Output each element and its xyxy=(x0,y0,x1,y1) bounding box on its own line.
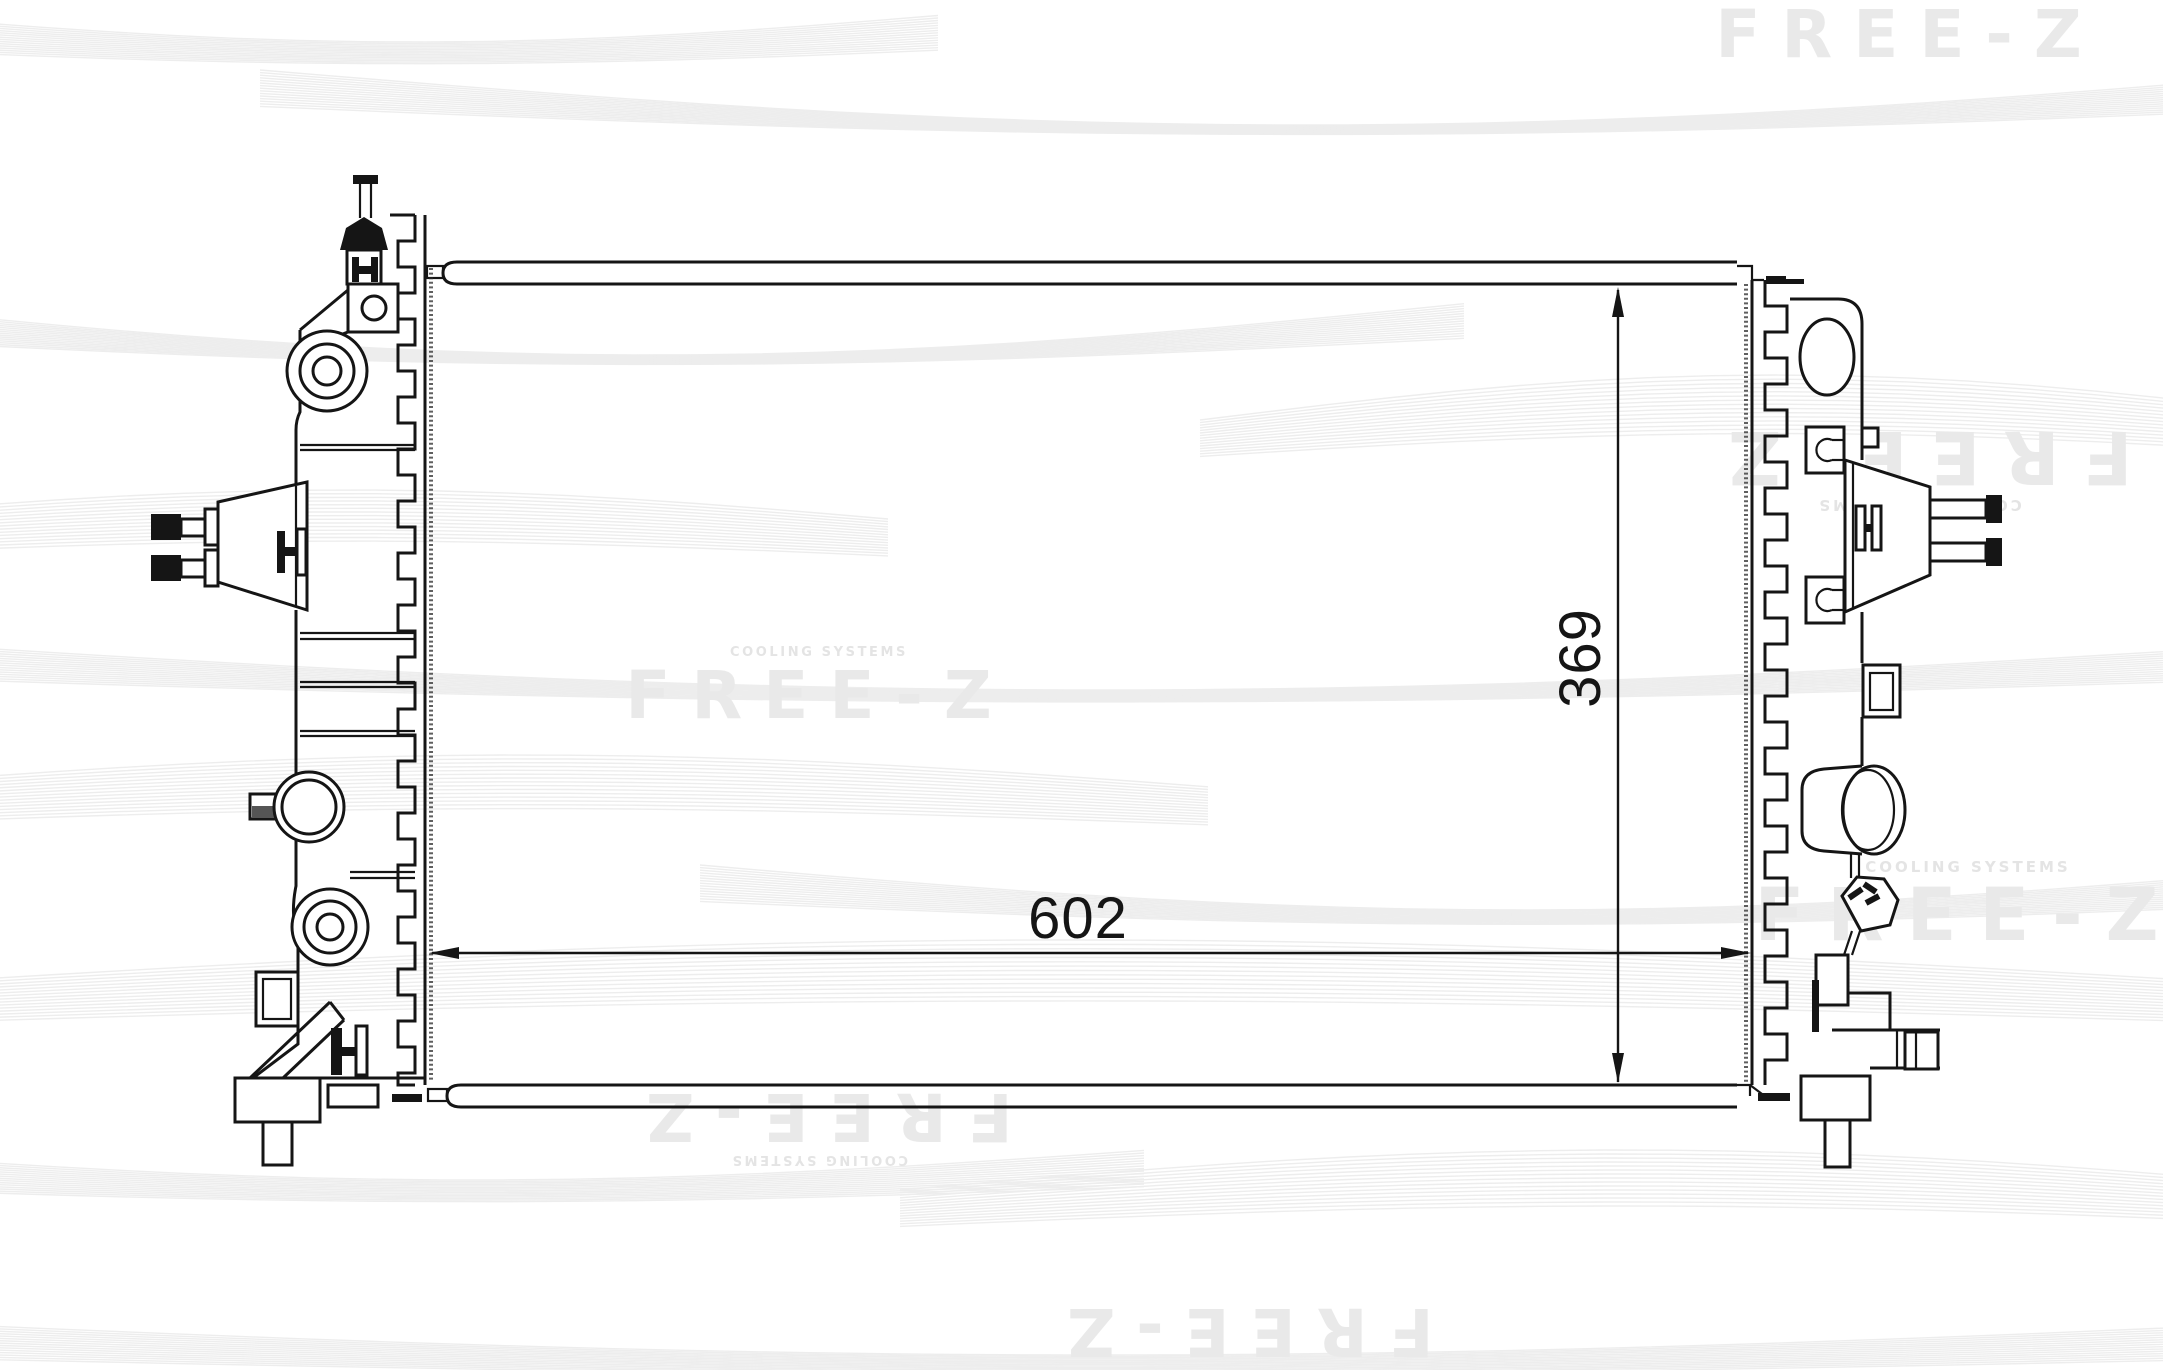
right-lower-bracket xyxy=(1812,955,1940,1069)
right-mounting-foot xyxy=(1737,1076,1870,1167)
radiator-drawing: 602 369 xyxy=(0,0,2163,1370)
pin-black-tip xyxy=(151,514,181,540)
plate-hole xyxy=(362,296,386,320)
dimension-height-label: 369 xyxy=(1548,608,1613,708)
arrowhead-left xyxy=(429,947,459,959)
drain-cock xyxy=(1842,877,1898,931)
dimension-height: 369 xyxy=(1548,287,1624,1083)
left-hose-connector xyxy=(151,482,307,610)
top-mounting-bushing xyxy=(287,331,367,411)
right-tank xyxy=(1737,266,2002,1167)
pin-black-tip xyxy=(151,555,181,581)
clip-bracket-lower xyxy=(1806,577,1844,623)
right-hose-connector xyxy=(1845,460,2002,612)
arrowhead-bottom xyxy=(1612,1053,1624,1083)
left-side-bracket xyxy=(256,972,298,1026)
mounting-peg xyxy=(1825,1120,1850,1167)
dimension-width-label: 602 xyxy=(1028,886,1128,951)
arrowhead-top xyxy=(1612,287,1624,317)
pin-black-tip xyxy=(1986,538,2002,566)
mounting-peg xyxy=(263,1122,292,1165)
left-tank-castellated-edge xyxy=(398,215,415,1085)
right-tank-castellated-edge xyxy=(1765,280,1787,1085)
filler-cap xyxy=(340,175,388,284)
clip-bracket-upper xyxy=(1806,427,1844,473)
tank-opening xyxy=(1800,319,1854,395)
square-bracket xyxy=(1863,665,1900,717)
left-tank xyxy=(151,175,425,1165)
pin-black-tip xyxy=(1986,495,2002,523)
cylinder-connector xyxy=(1802,766,1905,854)
page: COOLING SYSTEMS FREE-Z COOLING SYSTEMS F… xyxy=(0,0,2163,1370)
drain-plug xyxy=(250,772,344,842)
dimension-width: 602 xyxy=(429,886,1751,959)
lower-mounting-bushing xyxy=(292,889,368,965)
